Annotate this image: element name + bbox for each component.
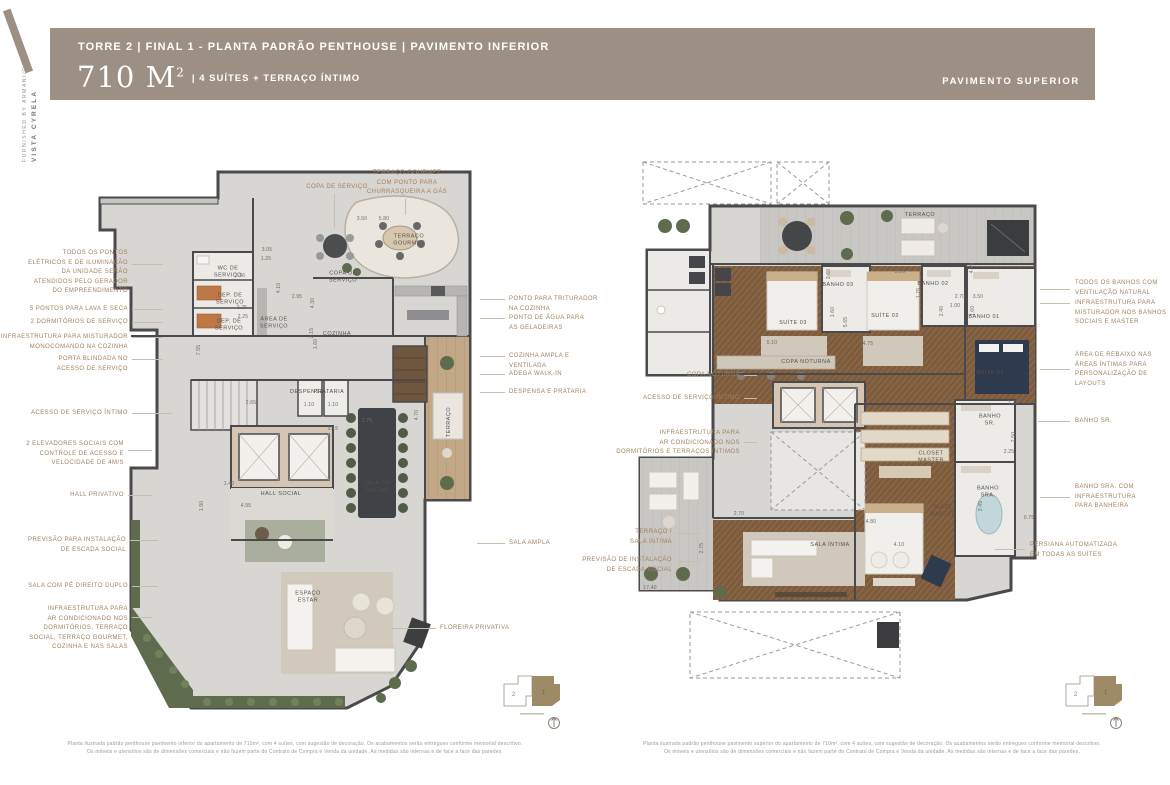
brand-name: VISTA CYRELA: [31, 12, 38, 162]
page-title: TORRE 2 | FINAL 1 - PLANTA PADRÃO PENTHO…: [78, 41, 549, 53]
leader-line: [1040, 497, 1070, 498]
callout-label: PONTO DE ÁGUA PARAAS GELADEIRAS: [509, 314, 584, 333]
elevator-shafts: [773, 382, 865, 428]
callout-label: DESPENSA E PRATARIA: [509, 388, 586, 398]
area-headline: 710 M2| 4 SUÍTES + TERRAÇO ÍNTIMO: [77, 60, 360, 94]
callout-label: ADEGA WALK-IN: [509, 370, 562, 380]
leader-line: [1040, 369, 1070, 370]
floorplan-inferior: [95, 168, 495, 713]
disclaimer-inferior: Planta ilustrada padrão penthouse pavime…: [60, 741, 530, 756]
terrace-gourmet: [345, 196, 458, 278]
keyplan-tower1-shape: [1094, 676, 1122, 706]
void-dashed-top: [643, 162, 829, 204]
keyplan-caption-line: [520, 713, 544, 715]
disclaimer-line: Os móveis e utensílios são de dimensões …: [60, 749, 530, 757]
leader-line: [1040, 303, 1070, 304]
disclaimer-superior: Planta ilustrada padrão penthouse pavime…: [637, 741, 1107, 756]
area-value: 710 M: [77, 60, 176, 94]
void-dashed-bottom: [690, 612, 900, 678]
callout-label: INFRAESTRUTURA PARAMISTURADOR NOS BANHOS…: [1075, 299, 1166, 328]
parapet-band: [100, 198, 218, 204]
keyplan-superior: 2 1: [1060, 666, 1132, 732]
terrace-sala-intima-deck: [640, 458, 713, 590]
area-subtitle: | 4 SUÍTES + TERRAÇO ÍNTIMO: [192, 73, 360, 84]
disclaimer-line: Planta ilustrada padrão penthouse pavime…: [60, 741, 530, 749]
keyplan-inferior: 2 1: [498, 666, 570, 732]
service-rooms: [193, 252, 253, 336]
callout-label: BANHO SRA. COMINFRAESTRUTURAPARA BANHEIR…: [1075, 483, 1136, 512]
brand-vertical-text: FURNISHED BY ARMANI/CASA VISTA CYRELA: [22, 12, 38, 162]
service-stairs: [191, 380, 257, 430]
service-wing: [647, 250, 710, 375]
leader-line: [1040, 289, 1070, 290]
callout-label: ÁREA DE REBAIXO NASÁREAS ÍNTIMAS PARAPER…: [1075, 351, 1152, 389]
disclaimer-line: Os móveis e utensílios são de dimensões …: [637, 749, 1107, 757]
callout-label: SALA AMPLA: [509, 539, 550, 549]
callout-label: COZINHA AMPLA EVENTILADA: [509, 352, 569, 371]
compass-icon: [549, 718, 560, 729]
void-dashed-center: [771, 432, 865, 510]
callout-label: BANHO SR.: [1075, 417, 1112, 427]
keyplan-tower2-shape: [504, 676, 532, 706]
floorplan-superior: [625, 160, 1040, 710]
brand-furnished-by: FURNISHED BY ARMANI/CASA: [22, 12, 28, 162]
keyplan-tower1-shape: [532, 676, 560, 706]
leader-line: [1038, 421, 1070, 422]
terrace-side-deck: [425, 336, 470, 500]
area-exponent: 2: [176, 65, 185, 79]
keyplan-tower2-shape: [1066, 676, 1094, 706]
disclaimer-line: Planta ilustrada padrão penthouse pavime…: [637, 741, 1107, 749]
keyplan-caption-line: [1082, 713, 1106, 715]
callout-label: PONTO PARA TRITURADORNA COZINHA: [509, 295, 598, 314]
callout-label: TODOS OS BANHOS COMVENTILAÇÃO NATURAL: [1075, 279, 1158, 298]
header-band: TORRE 2 | FINAL 1 - PLANTA PADRÃO PENTHO…: [50, 28, 1095, 100]
header-right-label: PAVIMENTO SUPERIOR: [942, 76, 1080, 87]
compass-icon: [1111, 718, 1122, 729]
callout-label: PERSIANA AUTOMATIZADAEM TODAS AS SUÍTES: [1030, 541, 1117, 560]
adega-walkin: [393, 346, 427, 402]
elevator-shafts: [231, 426, 333, 488]
